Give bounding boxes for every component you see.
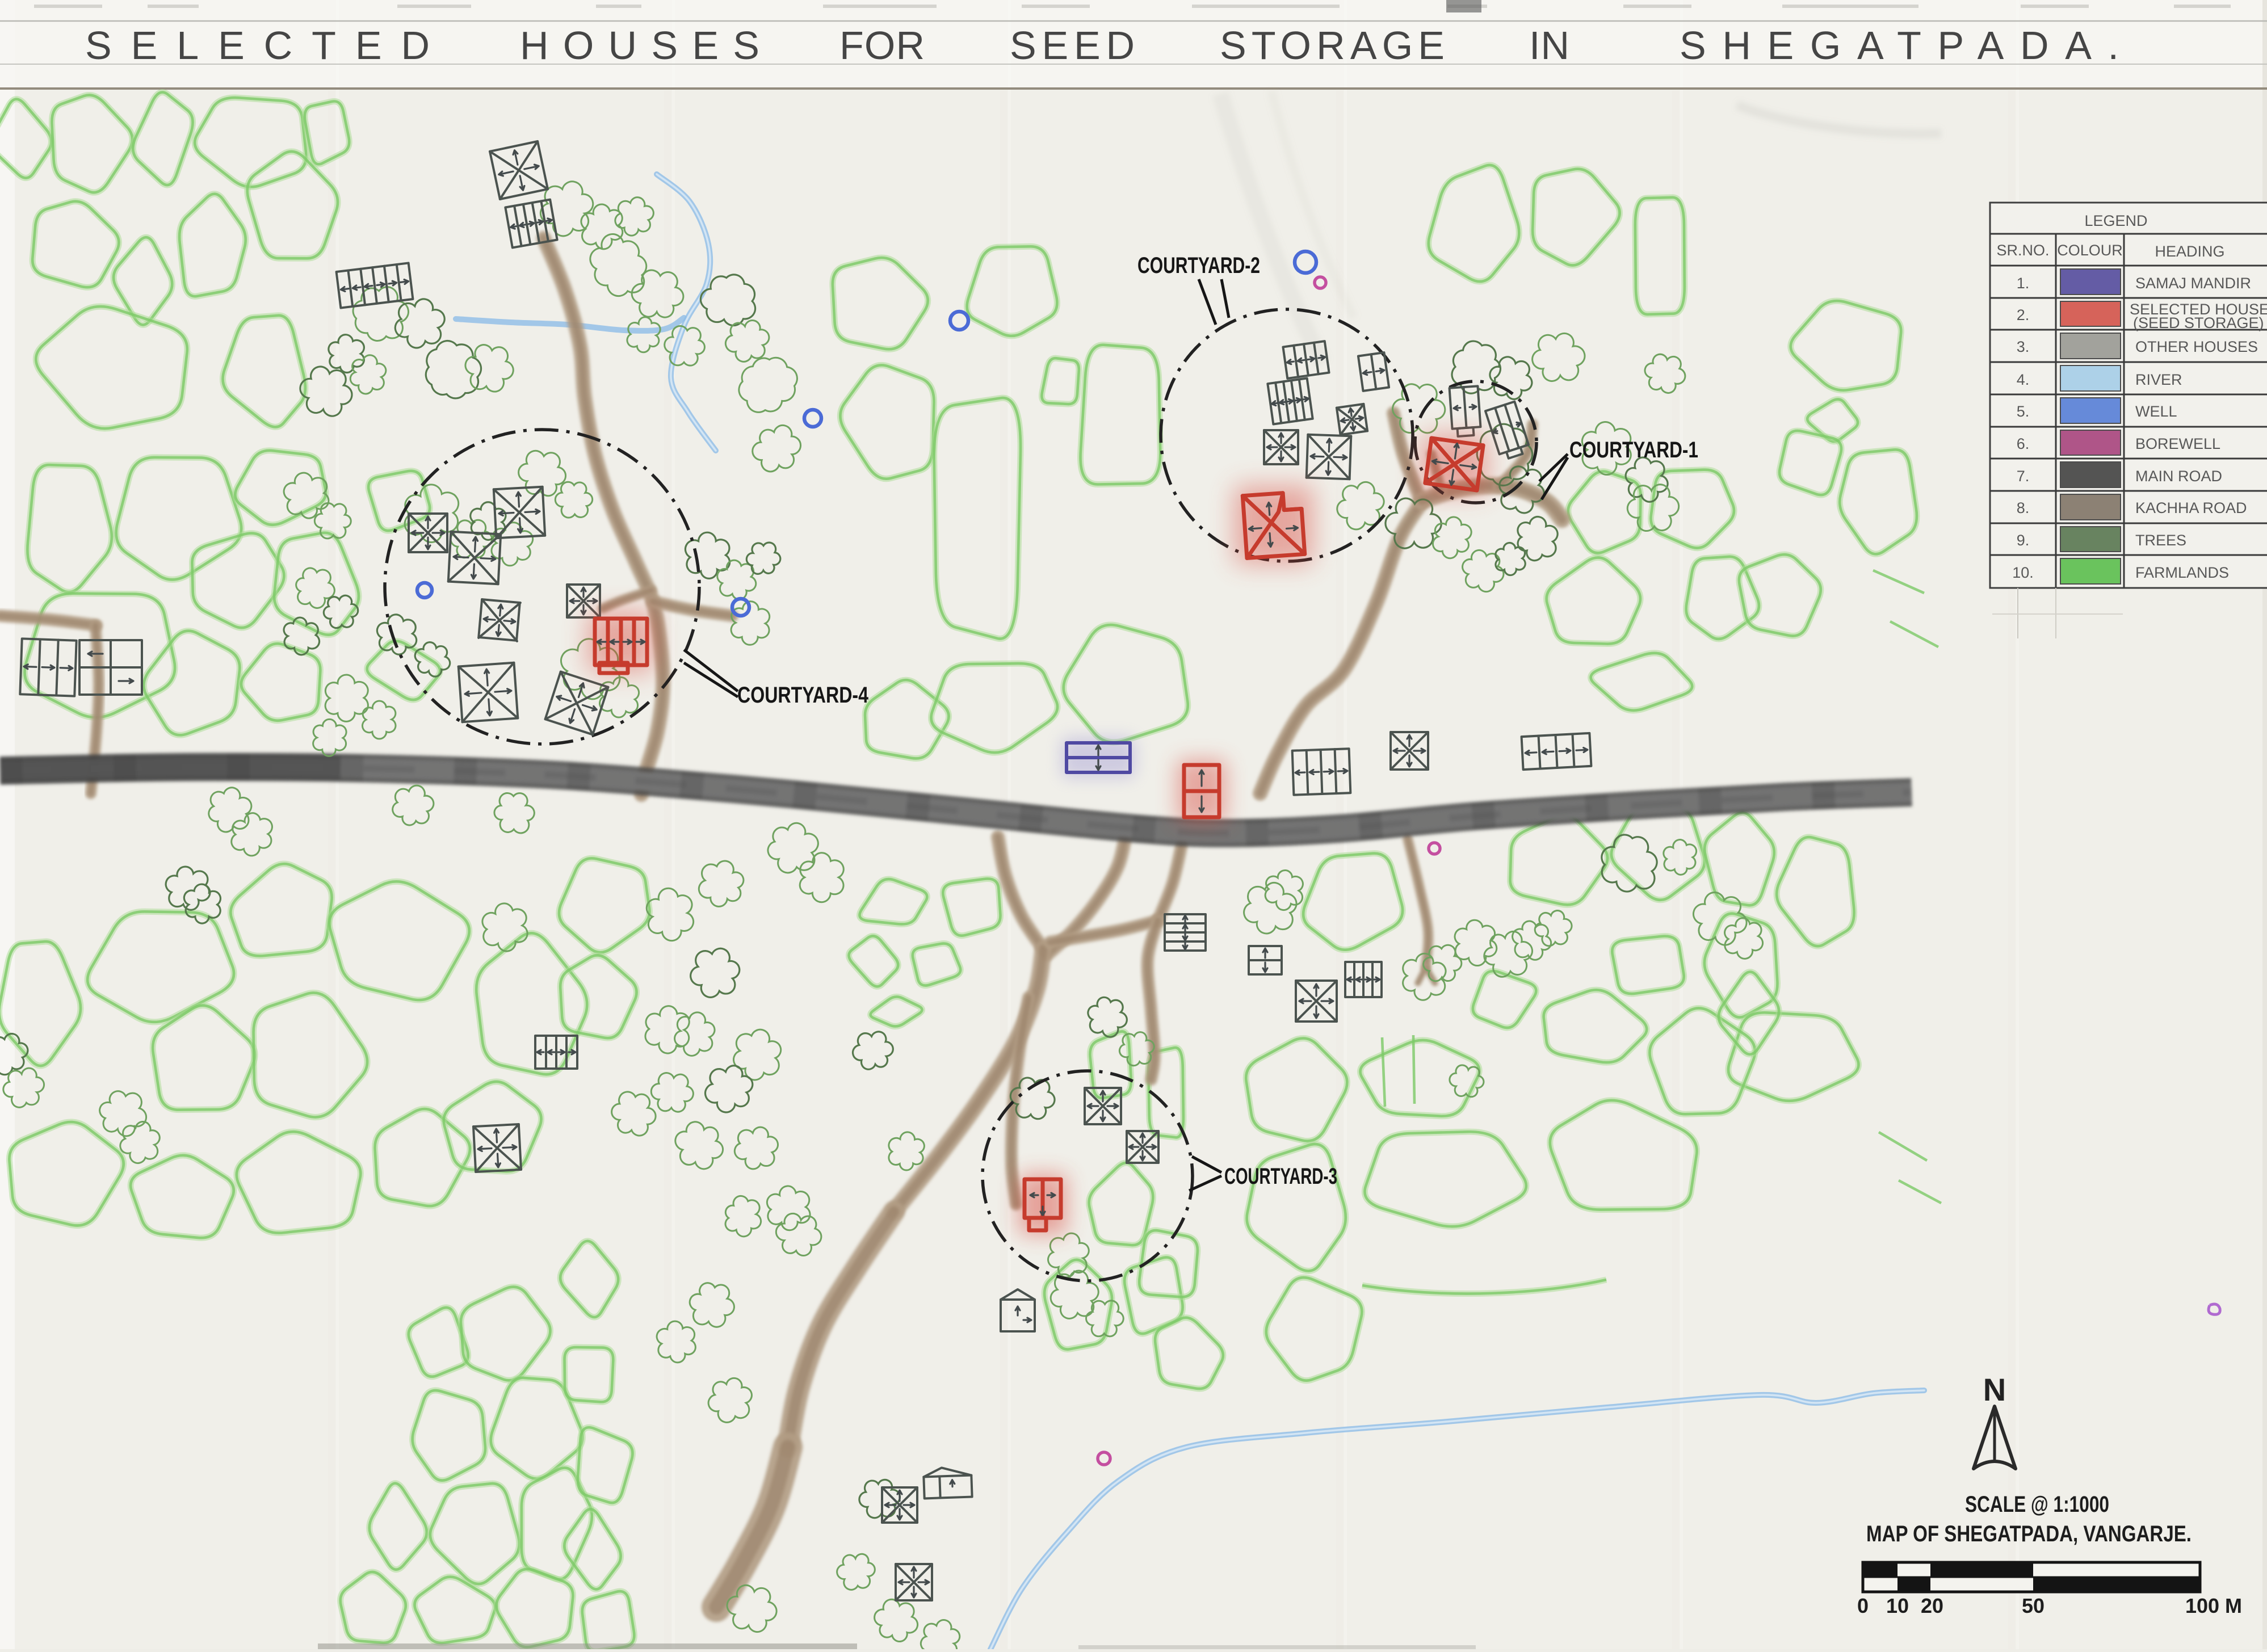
svg-text:100 M: 100 M	[2185, 1594, 2242, 1617]
svg-text:COURTYARD-2: COURTYARD-2	[1137, 253, 1260, 278]
svg-text:MAP OF SHEGATPADA, VANGARJE.: MAP OF SHEGATPADA, VANGARJE.	[1866, 1521, 2192, 1546]
svg-text:5.: 5.	[2017, 403, 2030, 420]
svg-text:OTHER HOUSES: OTHER HOUSES	[2135, 338, 2258, 355]
svg-text:10: 10	[1886, 1594, 1909, 1617]
svg-text:BOREWELL: BOREWELL	[2135, 435, 2220, 452]
svg-text:SR.NO.: SR.NO.	[1996, 242, 2049, 259]
svg-text:RIVER: RIVER	[2135, 371, 2182, 388]
svg-text:WELL: WELL	[2135, 403, 2177, 420]
svg-text:7.: 7.	[2017, 468, 2030, 485]
svg-text:2.: 2.	[2017, 306, 2030, 323]
svg-text:KACHHA ROAD: KACHHA ROAD	[2135, 499, 2247, 516]
svg-text:6.: 6.	[2017, 435, 2030, 452]
svg-text:4.: 4.	[2017, 371, 2030, 388]
svg-text:FOR: FOR	[839, 23, 925, 68]
svg-text:(SEED STORAGE): (SEED STORAGE)	[2133, 314, 2264, 331]
svg-text:0: 0	[1857, 1594, 1869, 1617]
svg-text:SAMAJ MANDIR: SAMAJ MANDIR	[2135, 275, 2251, 292]
svg-text:COURTYARD-3: COURTYARD-3	[1224, 1164, 1337, 1189]
svg-text:COURTYARD-4: COURTYARD-4	[737, 683, 869, 708]
svg-text:50: 50	[2022, 1594, 2045, 1617]
svg-text:SCALE @ 1:1000: SCALE @ 1:1000	[1965, 1492, 2109, 1517]
svg-text:1.: 1.	[2017, 275, 2030, 292]
svg-text:LEGEND: LEGEND	[2084, 212, 2147, 229]
svg-text:STORAGE: STORAGE	[1220, 23, 1445, 68]
svg-text:8.: 8.	[2017, 499, 2030, 516]
svg-text:TREES: TREES	[2135, 532, 2186, 549]
svg-text:COURTYARD-1: COURTYARD-1	[1569, 438, 1698, 463]
svg-text:COLOUR: COLOUR	[2057, 242, 2123, 259]
svg-text:MAIN ROAD: MAIN ROAD	[2135, 468, 2222, 485]
svg-text:FARMLANDS: FARMLANDS	[2135, 564, 2229, 581]
svg-text:9.: 9.	[2017, 532, 2030, 549]
svg-text:HEADING: HEADING	[2155, 243, 2224, 260]
svg-text:3.: 3.	[2017, 338, 2030, 355]
svg-text:N: N	[1983, 1372, 2006, 1407]
svg-text:IN: IN	[1529, 23, 1569, 68]
svg-text:20: 20	[1921, 1594, 1943, 1617]
svg-text:10.: 10.	[2012, 564, 2034, 581]
